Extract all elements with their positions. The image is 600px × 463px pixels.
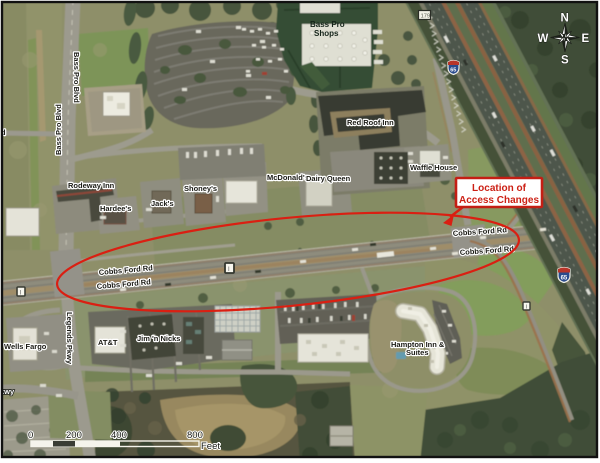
svg-text:Jim 'n Nicks: Jim 'n Nicks <box>137 334 180 343</box>
svg-text:AT&T: AT&T <box>98 338 118 347</box>
svg-text:Shoney's: Shoney's <box>184 184 217 193</box>
svg-text:Bass Pro Blvd: Bass Pro Blvd <box>54 104 63 155</box>
svg-text:Suites: Suites <box>406 348 429 357</box>
svg-text:Legends Pkwy: Legends Pkwy <box>65 312 74 365</box>
svg-text:Rodeway Inn: Rodeway Inn <box>68 181 115 190</box>
svg-text:Bass Pro Blvd: Bass Pro Blvd <box>72 52 81 103</box>
svg-text:Red Roof Inn: Red Roof Inn <box>347 118 394 127</box>
svg-text:400: 400 <box>111 430 127 441</box>
svg-text:Shops: Shops <box>314 29 339 38</box>
svg-text:65: 65 <box>450 68 456 74</box>
svg-text:0: 0 <box>28 430 33 441</box>
svg-text:Feet: Feet <box>201 441 220 452</box>
svg-text:W: W <box>538 33 549 45</box>
svg-text:Hardee's: Hardee's <box>100 204 131 213</box>
svg-text:800: 800 <box>187 430 203 441</box>
svg-text:Dairy Queen: Dairy Queen <box>306 174 351 183</box>
svg-text:Jack's: Jack's <box>151 199 174 208</box>
svg-text:N: N <box>561 13 569 25</box>
svg-text:Waffle House: Waffle House <box>410 163 457 172</box>
svg-text:179: 179 <box>421 13 430 19</box>
svg-text:McDonald's: McDonald's <box>267 173 309 182</box>
svg-text:Access Changes: Access Changes <box>459 195 539 206</box>
svg-text:65: 65 <box>561 276 568 282</box>
svg-text:Bass Pro: Bass Pro <box>310 20 345 29</box>
svg-text:S: S <box>561 55 569 67</box>
svg-text:Location of: Location of <box>472 183 527 194</box>
svg-text:E: E <box>582 33 590 45</box>
svg-text:Wells Fargo: Wells Fargo <box>4 342 47 351</box>
svg-text:200: 200 <box>66 430 82 441</box>
